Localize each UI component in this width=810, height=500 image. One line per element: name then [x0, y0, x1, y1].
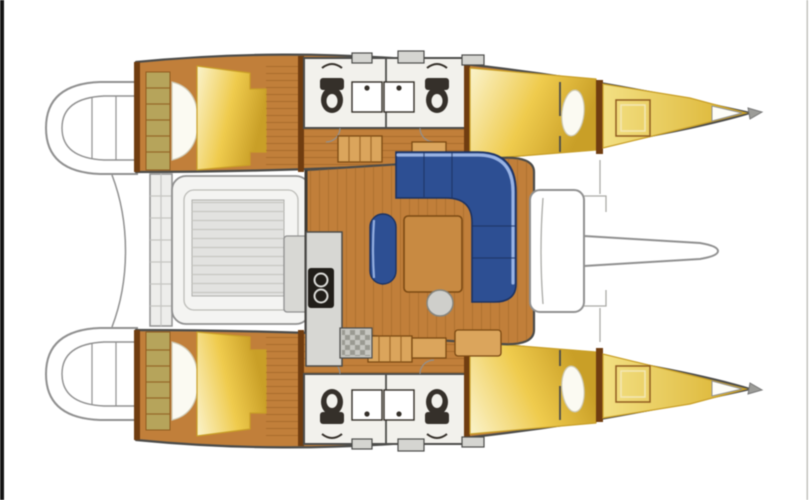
left-frame-edge: [0, 0, 4, 500]
catamaran-deck-plan: Top-down interior layout plan of a four-…: [0, 0, 810, 500]
mid-bulkhead: [464, 62, 470, 164]
salon-stool: [427, 290, 453, 316]
forward-crossbeam: [530, 190, 584, 312]
right-frame-edge: [807, 0, 809, 500]
deck-hatch: [398, 51, 424, 63]
aft-cabin: [146, 62, 300, 170]
foredeck: [530, 160, 718, 342]
aft-cockpit: [112, 174, 310, 327]
bow-fitting: [748, 108, 762, 119]
transom-curve: [112, 175, 126, 327]
cabinet: [412, 338, 446, 358]
salon: [306, 136, 534, 366]
cabin-steps: [146, 72, 170, 170]
cabin-floor: [266, 62, 300, 170]
salon-table: [404, 216, 462, 292]
bathrooms: [304, 58, 466, 128]
deck-hatch: [462, 55, 484, 65]
cockpit-table: [284, 236, 308, 312]
stern-platform: [46, 82, 138, 174]
companionway-steps: [338, 136, 382, 162]
forepeak-bulkhead: [596, 80, 603, 154]
cabinet: [455, 330, 501, 356]
forepeak: [603, 84, 746, 148]
companionway-steps: [368, 336, 412, 362]
screenshot-canvas: Top-down interior layout plan of a four-…: [0, 0, 810, 500]
transom-bulkhead: [134, 62, 140, 172]
forward-cabin: [470, 68, 596, 160]
bowsprit: [584, 236, 718, 266]
deck-hatch: [352, 53, 372, 63]
